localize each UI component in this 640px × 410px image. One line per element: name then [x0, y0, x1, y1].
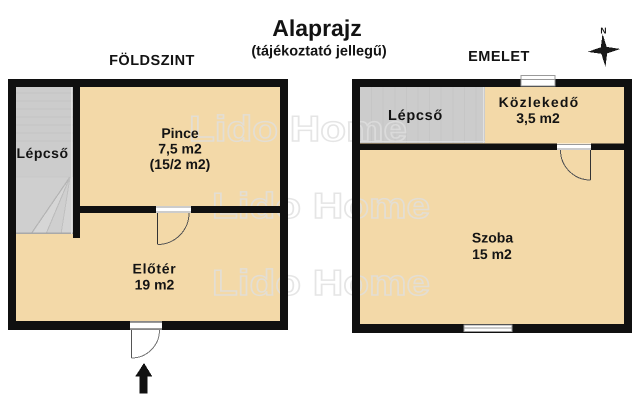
svg-text:Lido Home: Lido Home: [212, 185, 430, 226]
svg-text:Lépcső: Lépcső: [16, 145, 68, 161]
svg-text:19 m2: 19 m2: [135, 277, 175, 293]
svg-text:Előtér: Előtér: [133, 261, 177, 277]
svg-text:Lépcső: Lépcső: [388, 108, 443, 124]
svg-text:Pince: Pince: [161, 125, 199, 141]
svg-text:(15/2 m2): (15/2 m2): [150, 156, 211, 172]
svg-text:Lido Home: Lido Home: [212, 262, 430, 303]
svg-text:7,5 m2: 7,5 m2: [158, 141, 202, 157]
svg-text:3,5 m2: 3,5 m2: [516, 110, 560, 126]
svg-text:Lido Home: Lido Home: [189, 108, 407, 149]
svg-text:EMELET: EMELET: [468, 49, 530, 65]
svg-text:N: N: [600, 26, 606, 36]
svg-text:15 m2: 15 m2: [472, 246, 512, 262]
svg-text:Szoba: Szoba: [472, 230, 513, 246]
svg-text:(tájékoztató jellegű): (tájékoztató jellegű): [251, 44, 387, 60]
svg-text:FÖLDSZINT: FÖLDSZINT: [109, 52, 195, 69]
svg-text:Közlekedő: Közlekedő: [499, 94, 580, 110]
svg-text:Alaprajz: Alaprajz: [272, 15, 361, 41]
